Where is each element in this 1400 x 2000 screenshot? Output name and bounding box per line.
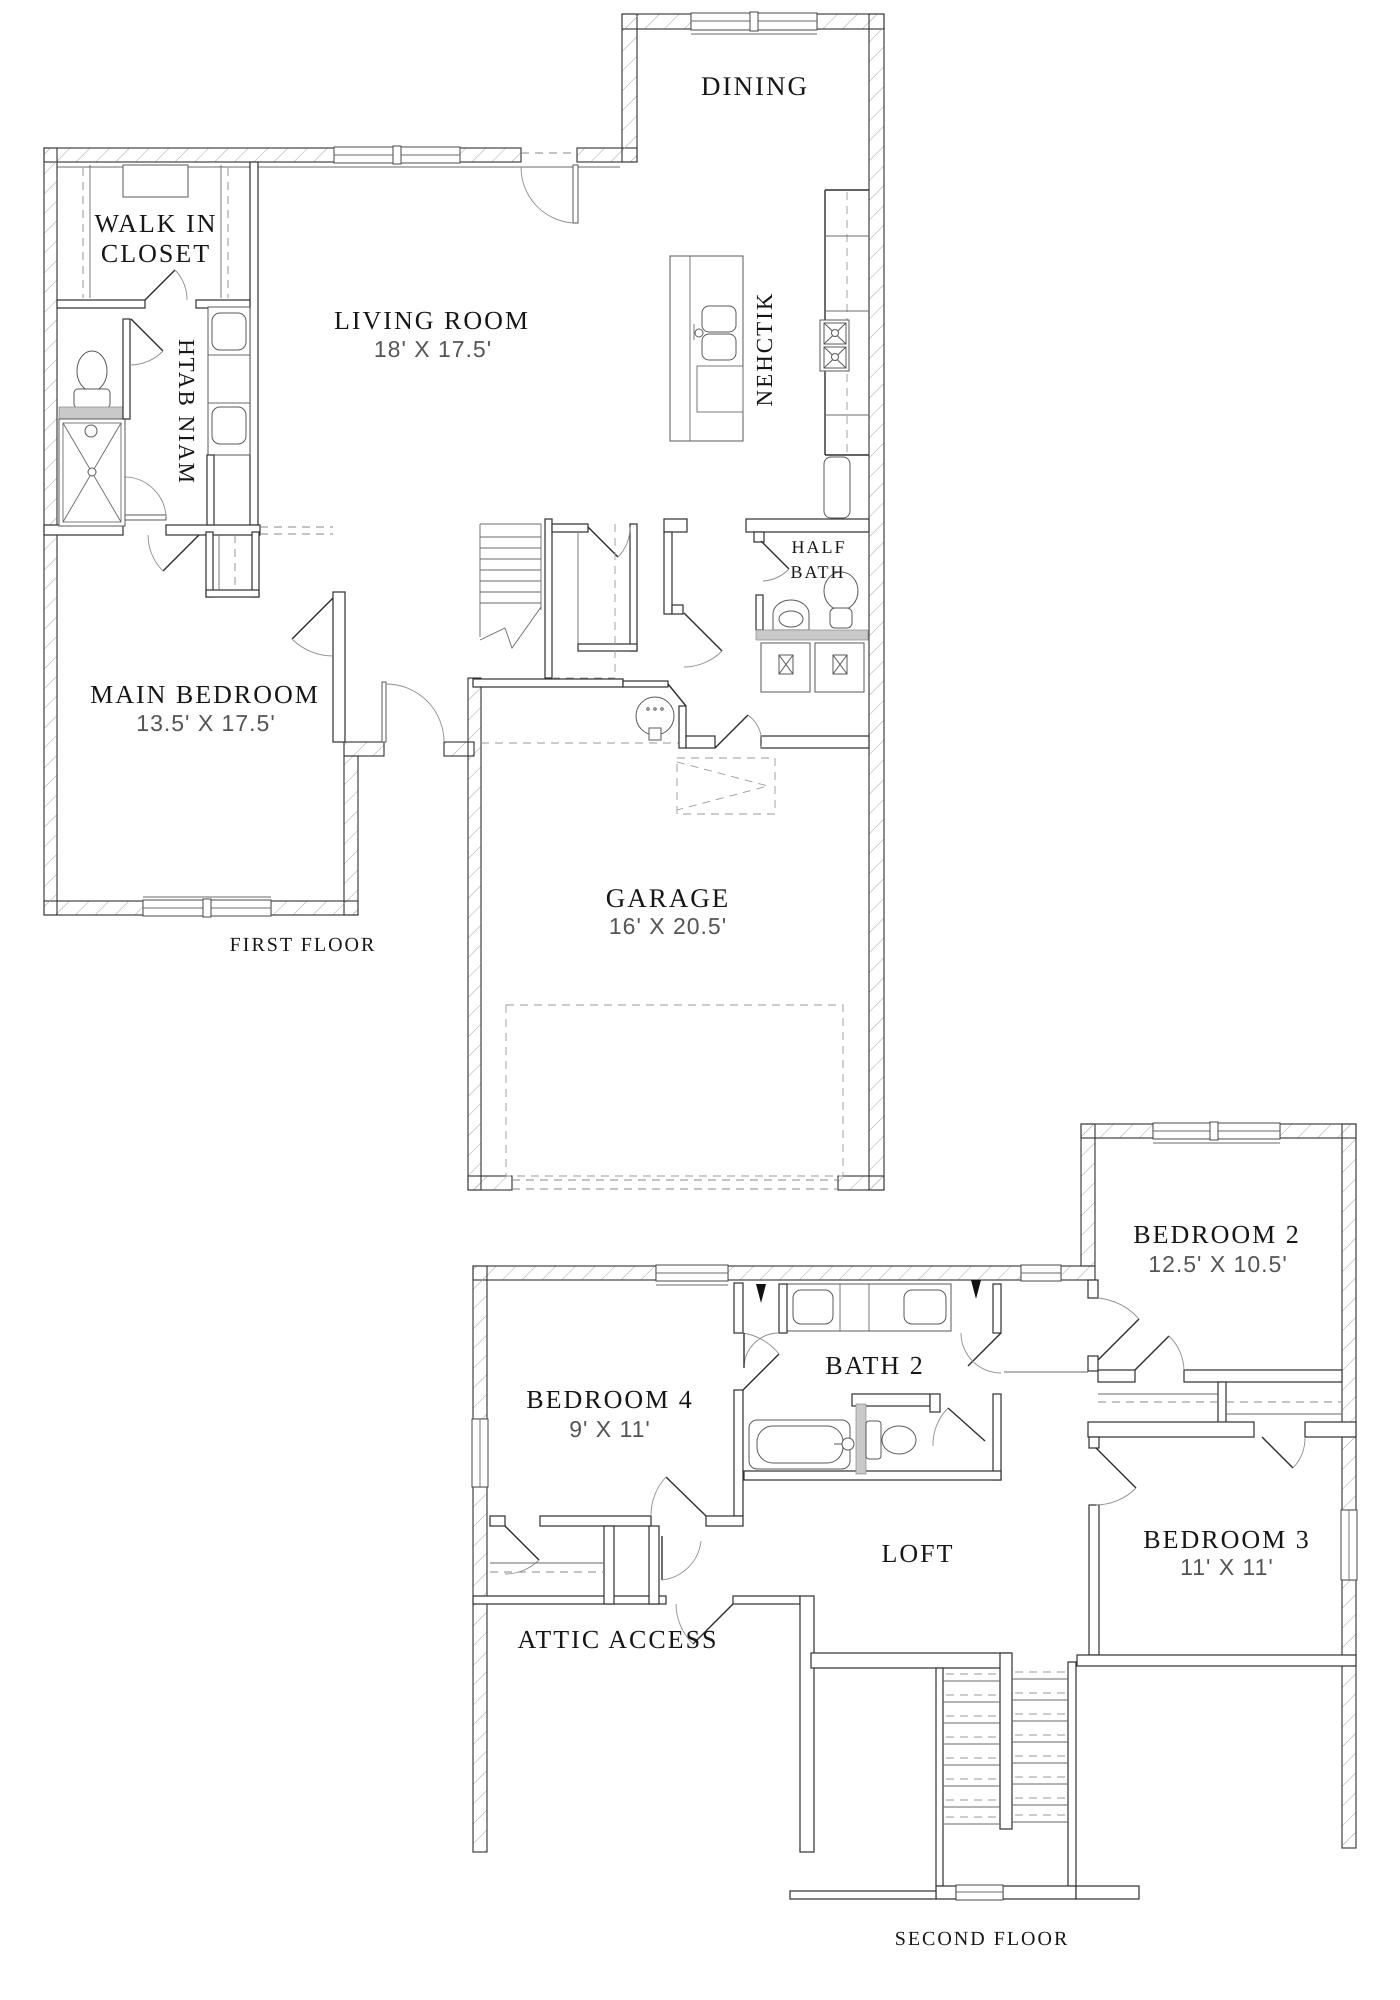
- svg-text:LIVING ROOM: LIVING ROOM: [334, 306, 530, 335]
- svg-text:FIRST FLOOR: FIRST FLOOR: [230, 934, 377, 956]
- svg-text:BEDROOM 2: BEDROOM 2: [1133, 1220, 1301, 1249]
- svg-text:ATTIC ACCESS: ATTIC ACCESS: [518, 1625, 719, 1654]
- svg-text:18' X 17.5': 18' X 17.5': [374, 336, 492, 362]
- svg-text:9' X 11': 9' X 11': [569, 1416, 651, 1442]
- svg-text:BEDROOM 4: BEDROOM 4: [526, 1385, 694, 1414]
- svg-text:13.5' X 17.5': 13.5' X 17.5': [136, 710, 275, 736]
- svg-text:12.5' X 10.5': 12.5' X 10.5': [1148, 1251, 1287, 1277]
- svg-text:GARAGE: GARAGE: [606, 883, 731, 913]
- svg-text:HALF: HALF: [791, 537, 846, 557]
- svg-text:WALK IN: WALK IN: [94, 209, 217, 238]
- svg-text:11' X 11': 11' X 11': [1180, 1554, 1274, 1580]
- svg-text:BATH: BATH: [790, 562, 845, 582]
- svg-text:16' X 20.5': 16' X 20.5': [609, 913, 727, 939]
- svg-text:LOFT: LOFT: [882, 1539, 955, 1568]
- svg-text:CLOSET: CLOSET: [101, 239, 211, 268]
- svg-text:BATH 2: BATH 2: [825, 1351, 924, 1380]
- svg-text:NEHCTIK: NEHCTIK: [752, 292, 777, 407]
- svg-text:BEDROOM 3: BEDROOM 3: [1143, 1525, 1311, 1554]
- svg-text:MAIN BEDROOM: MAIN BEDROOM: [90, 680, 320, 709]
- svg-text:HTAB NIAM: HTAB NIAM: [174, 339, 199, 485]
- svg-text:DINING: DINING: [701, 71, 809, 101]
- svg-text:SECOND FLOOR: SECOND FLOOR: [895, 1928, 1070, 1950]
